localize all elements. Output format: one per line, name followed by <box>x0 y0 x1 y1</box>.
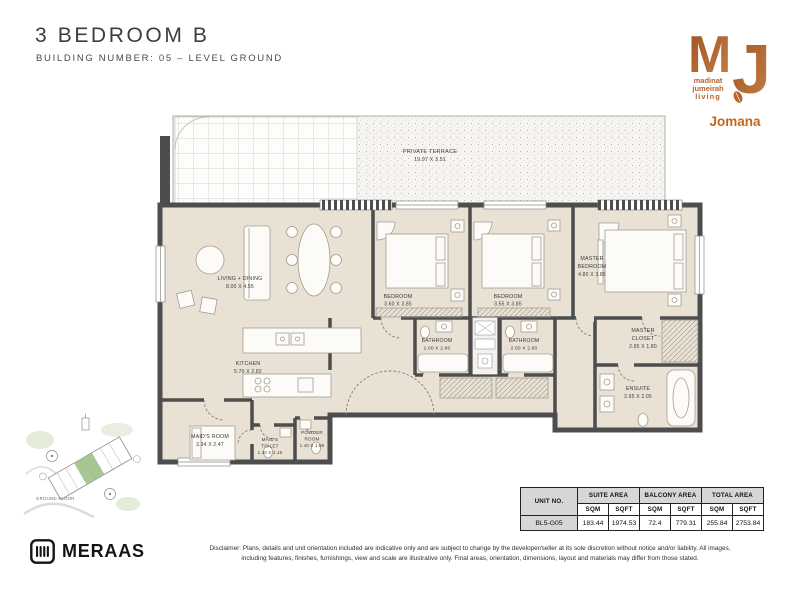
col-suite-area: SUITE AREA <box>578 488 640 504</box>
balcony-sqm: 72.4 <box>640 516 671 531</box>
svg-text:CLOSET: CLOSET <box>632 336 655 342</box>
brochure-page: 3 BEDROOM B BUILDING NUMBER: 05 – LEVEL … <box>0 0 800 600</box>
col-sqft: SQFT <box>609 504 640 516</box>
kitchen-counter <box>243 374 331 397</box>
label-terrace: PRIVATE TERRACE <box>403 149 457 155</box>
svg-text:3.60 X 3.85: 3.60 X 3.85 <box>384 302 412 308</box>
label-bedroom1: BEDROOM <box>384 294 413 300</box>
svg-text:2.95 X 2.05: 2.95 X 2.05 <box>624 394 652 400</box>
service-shaft <box>472 317 498 375</box>
page-title: 3 BEDROOM B <box>35 24 209 48</box>
col-unit-no: UNIT NO. <box>521 488 578 516</box>
balcony-sqft: 779.31 <box>671 516 702 531</box>
meraas-logo-icon <box>30 539 55 564</box>
label-bathroom2: BATHROOM <box>509 338 540 344</box>
total-sqft: 2753.84 <box>733 516 764 531</box>
terrace-door-living <box>320 200 392 210</box>
key-plan: GROUND FLOOR <box>22 412 147 527</box>
svg-text:2.95 X 1.80: 2.95 X 1.80 <box>629 344 657 350</box>
svg-text:TOILET: TOILET <box>261 444 278 449</box>
bathtub <box>503 354 553 372</box>
svg-text:8.00 X 4.55: 8.00 X 4.55 <box>226 284 254 290</box>
label-maids: MAID'S ROOM <box>191 434 229 440</box>
disclaimer-line-2: including features, finishes, furnishing… <box>241 555 698 562</box>
dining-table <box>298 224 330 296</box>
meraas-wordmark: MERAAS <box>62 541 145 562</box>
terrace-door-master <box>598 200 682 210</box>
svg-text:19.97 X 3.51: 19.97 X 3.51 <box>414 157 446 163</box>
bathtub <box>418 354 468 372</box>
svg-text:3.34 X 2.47: 3.34 X 2.47 <box>196 442 224 448</box>
col-sqft: SQFT <box>733 504 764 516</box>
label-powder: POWDER <box>301 430 323 435</box>
col-sqft: SQFT <box>671 504 702 516</box>
private-terrace <box>160 116 665 206</box>
suite-sqft: 1974.53 <box>609 516 640 531</box>
label-bedroom2: BEDROOM <box>494 294 523 300</box>
table-row: BL5-G05 183.44 1974.53 72.4 779.31 255.8… <box>521 516 764 531</box>
disclaimer-line-1: Disclaimer: Plans, details and unit orie… <box>209 545 730 552</box>
label-living: LIVING + DINING <box>218 276 263 282</box>
label-bathroom1: BATHROOM <box>422 338 453 344</box>
unit-no: BL5-G05 <box>521 516 578 531</box>
svg-text:BEDROOM: BEDROOM <box>578 264 607 270</box>
armchair <box>200 297 217 314</box>
svg-text:2.00 X 2.60: 2.00 X 2.60 <box>424 346 451 352</box>
total-sqm: 255.84 <box>702 516 733 531</box>
page-subtitle: BUILDING NUMBER: 05 – LEVEL GROUND <box>36 53 283 64</box>
label-maids-toilet: MAID'S <box>262 437 279 442</box>
label-closet: MASTER <box>631 328 654 334</box>
svg-text:3.55 X 3.85: 3.55 X 3.85 <box>494 302 522 308</box>
label-ensuite: ENSUITE <box>626 386 651 392</box>
col-balcony-area: BALCONY AREA <box>640 488 702 504</box>
svg-text:4.80 X 3.85: 4.80 X 3.85 <box>578 272 606 278</box>
svg-text:5.70 X 2.82: 5.70 X 2.82 <box>234 369 262 375</box>
svg-text:ROOM: ROOM <box>304 437 319 442</box>
svg-text:1.40 X 2.16: 1.40 X 2.16 <box>258 450 283 455</box>
armchair <box>177 290 195 308</box>
project-name: Jomana <box>709 114 761 129</box>
col-sqm: SQM <box>640 504 671 516</box>
svg-text:2.00 X 2.60: 2.00 X 2.60 <box>511 346 538 352</box>
keyplan-label: GROUND FLOOR <box>36 496 75 501</box>
floorplan: PRIVATE TERRACE 19.97 X 3.51 LIVING + DI… <box>148 108 708 490</box>
coffee-table <box>196 246 224 274</box>
area-table: UNIT NO. SUITE AREA BALCONY AREA TOTAL A… <box>520 487 764 531</box>
label-kitchen: KITCHEN <box>236 361 261 367</box>
tower-icon <box>82 414 89 430</box>
meraas-logo: MERAAS <box>30 539 145 564</box>
col-total-area: TOTAL AREA <box>702 488 764 504</box>
svg-text:1.40 X 1.88: 1.40 X 1.88 <box>300 443 325 448</box>
terrace-wall <box>160 136 170 206</box>
mj-tagline-3: living <box>695 92 721 101</box>
disclaimer-text: Disclaimer: Plans, details and unit orie… <box>158 544 782 563</box>
suite-sqm: 183.44 <box>578 516 609 531</box>
col-sqm: SQM <box>578 504 609 516</box>
col-sqm: SQM <box>702 504 733 516</box>
label-master: MASTER <box>580 256 603 262</box>
